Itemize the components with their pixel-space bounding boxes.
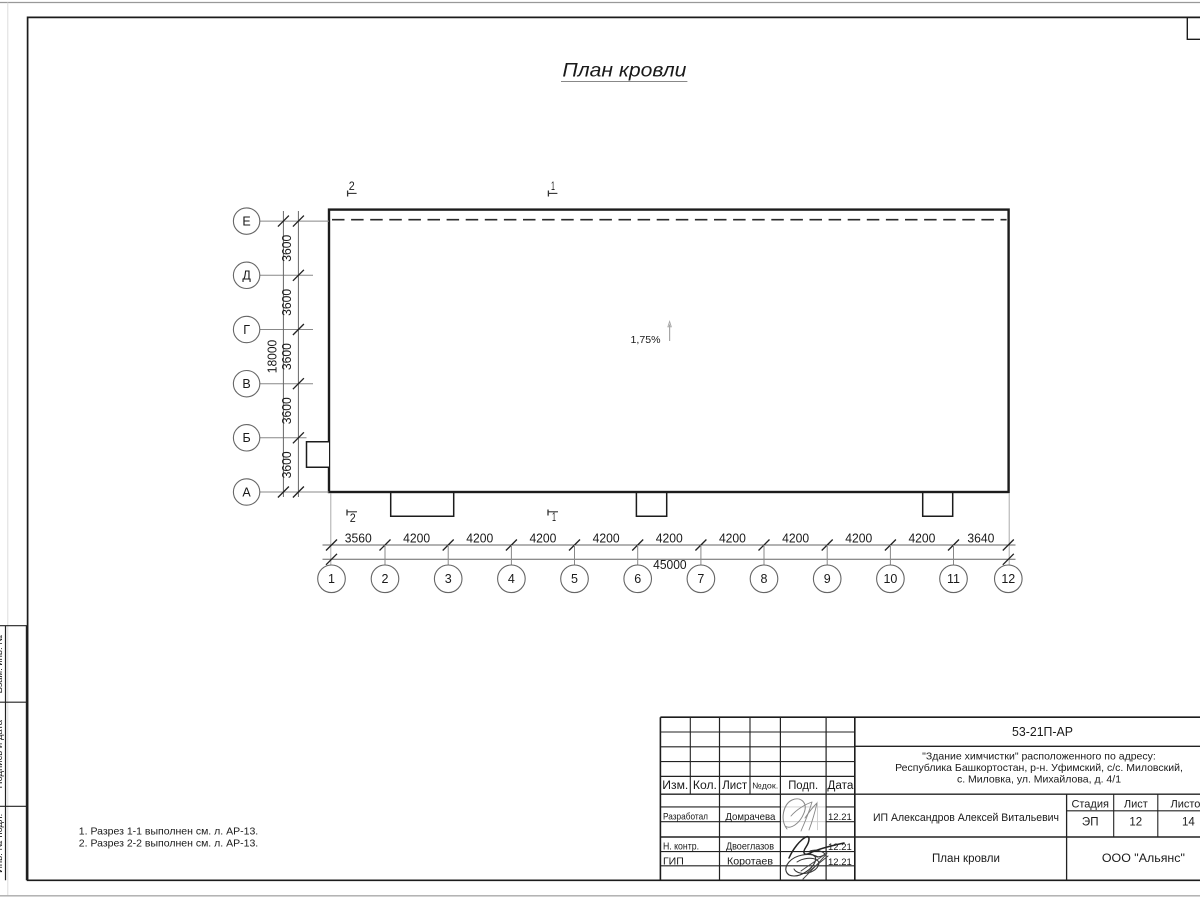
svg-text:4200: 4200	[845, 531, 872, 545]
svg-text:"Здание химчистки" расположенн: "Здание химчистки" расположенного по адр…	[922, 751, 1156, 763]
svg-text:1: 1	[328, 572, 335, 586]
svg-text:Взам. инв. №: Взам. инв. №	[0, 635, 5, 694]
svg-text:Лист: Лист	[722, 780, 748, 792]
svg-text:ИП Александров Алексей Виталье: ИП Александров Алексей Витальевич	[873, 812, 1059, 824]
svg-text:4200: 4200	[529, 531, 556, 545]
svg-text:3600: 3600	[280, 397, 294, 424]
svg-text:12.21: 12.21	[828, 812, 852, 823]
svg-text:В: В	[242, 377, 250, 391]
svg-text:7: 7	[697, 572, 704, 586]
svg-text:4200: 4200	[656, 531, 683, 545]
svg-text:1: 1	[552, 510, 556, 524]
svg-text:ЭП: ЭП	[1082, 817, 1099, 829]
svg-text:Изм.: Изм.	[662, 780, 688, 792]
svg-text:4200: 4200	[782, 531, 809, 545]
svg-text:9: 9	[824, 572, 831, 586]
svg-text:11: 11	[947, 572, 960, 586]
svg-text:Коротаев: Коротаев	[727, 855, 773, 867]
svg-text:14: 14	[1182, 817, 1195, 829]
svg-text:с. Миловка, ул. Михайлова, д.: с. Миловка, ул. Михайлова, д. 4/1	[957, 774, 1121, 786]
svg-text:ГИП: ГИП	[663, 855, 684, 867]
svg-text:4200: 4200	[908, 531, 935, 545]
svg-text:№док.: №док.	[752, 780, 778, 790]
svg-text:А: А	[242, 485, 251, 499]
svg-text:Двоеглазов: Двоеглазов	[726, 840, 774, 852]
svg-text:План кровли: План кровли	[932, 853, 1000, 865]
svg-text:1: 1	[551, 179, 555, 193]
svg-text:3640: 3640	[967, 531, 994, 545]
svg-text:5: 5	[571, 572, 578, 586]
svg-text:Домрачева: Домрачева	[725, 811, 775, 823]
svg-text:Дата: Дата	[827, 780, 854, 792]
svg-text:4200: 4200	[593, 531, 620, 545]
svg-text:53-21П-АР: 53-21П-АР	[1012, 724, 1073, 739]
svg-text:Лист: Лист	[1124, 798, 1148, 810]
svg-text:3600: 3600	[280, 289, 294, 316]
svg-text:12: 12	[1001, 572, 1015, 586]
svg-text:1. Разрез 1-1 выполнен см. л.: 1. Разрез 1-1 выполнен см. л. АР-13.	[79, 826, 258, 838]
svg-text:4200: 4200	[719, 531, 746, 545]
svg-text:2: 2	[382, 572, 389, 586]
svg-text:Подп.: Подп.	[788, 780, 818, 792]
svg-text:Д: Д	[242, 269, 251, 283]
svg-text:Кол.: Кол.	[693, 780, 717, 792]
svg-text:3600: 3600	[280, 451, 294, 478]
svg-text:10: 10	[883, 572, 897, 586]
svg-text:Н. контр.: Н. контр.	[663, 841, 699, 852]
svg-text:8: 8	[761, 572, 768, 586]
svg-text:Г: Г	[243, 323, 250, 337]
svg-text:12: 12	[1129, 817, 1142, 829]
svg-text:3560: 3560	[345, 531, 372, 545]
svg-text:Подпись и дата: Подпись и дата	[0, 719, 5, 788]
svg-text:1,75%: 1,75%	[631, 334, 661, 346]
svg-text:Республика Башкортостан, р-н.: Республика Башкортостан, р-н. Уфимский, …	[895, 762, 1183, 774]
svg-text:3600: 3600	[280, 235, 294, 262]
svg-text:Е: Е	[242, 214, 250, 228]
svg-text:2: 2	[350, 511, 356, 525]
svg-text:Стадия: Стадия	[1071, 798, 1109, 810]
svg-text:ООО "Альянс": ООО "Альянс"	[1102, 851, 1185, 865]
svg-text:2: 2	[349, 179, 355, 193]
svg-text:Б: Б	[242, 431, 250, 445]
svg-text:3: 3	[445, 572, 452, 586]
svg-text:Листов: Листов	[1171, 798, 1200, 810]
svg-text:2. Разрез 2-2 выполнен см. л.: 2. Разрез 2-2 выполнен см. л. АР-13.	[79, 838, 258, 850]
svg-text:4200: 4200	[403, 531, 430, 545]
svg-text:План кровли: План кровли	[562, 60, 686, 82]
svg-text:4: 4	[508, 572, 515, 586]
svg-text:12.21: 12.21	[828, 857, 852, 868]
svg-text:45000: 45000	[653, 558, 687, 572]
svg-text:3600: 3600	[280, 343, 294, 370]
svg-text:4200: 4200	[466, 531, 493, 545]
svg-text:18000: 18000	[265, 340, 279, 374]
svg-text:Инв. № подл.: Инв. № подл.	[0, 814, 5, 873]
svg-text:6: 6	[634, 572, 641, 586]
svg-text:Разработал: Разработал	[663, 811, 708, 822]
